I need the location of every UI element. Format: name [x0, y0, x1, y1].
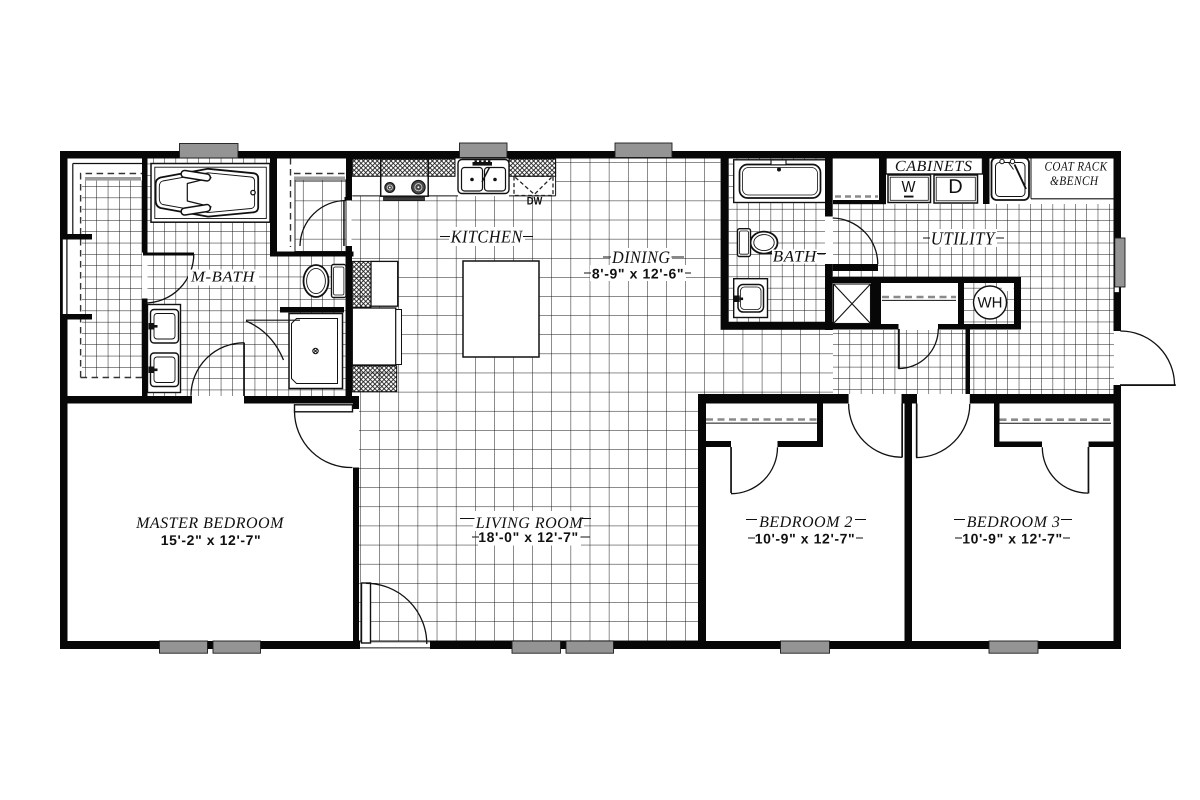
svg-text:BEDROOM 3: BEDROOM 3 [967, 514, 1061, 531]
svg-text:10'-9" x 12'-7": 10'-9" x 12'-7" [962, 531, 1063, 547]
svg-text:DW: DW [527, 195, 543, 207]
svg-text:18'-0" x 12'-7": 18'-0" x 12'-7" [478, 529, 579, 545]
svg-text:CABINETS: CABINETS [895, 158, 973, 175]
svg-text:10'-9" x 12'-7": 10'-9" x 12'-7" [755, 531, 856, 547]
svg-text:8'-9" x 12'-6": 8'-9" x 12'-6" [592, 266, 684, 282]
svg-text:WH: WH [978, 295, 1003, 312]
svg-text:W: W [902, 179, 917, 196]
svg-text:15'-2" x 12'-7": 15'-2" x 12'-7" [161, 532, 262, 548]
svg-text:UTILITY: UTILITY [931, 230, 996, 250]
svg-text:COAT RACK: COAT RACK [1045, 159, 1109, 174]
svg-text:MASTER BEDROOM: MASTER BEDROOM [135, 515, 285, 532]
svg-text:BATH: BATH [773, 249, 818, 266]
svg-text:D: D [948, 176, 962, 198]
svg-text:&BENCH: &BENCH [1050, 173, 1099, 188]
svg-text:BEDROOM 2: BEDROOM 2 [759, 514, 853, 531]
svg-text:KITCHEN: KITCHEN [450, 227, 523, 247]
svg-text:DINING: DINING [611, 247, 670, 267]
svg-text:M-BATH: M-BATH [190, 270, 256, 286]
